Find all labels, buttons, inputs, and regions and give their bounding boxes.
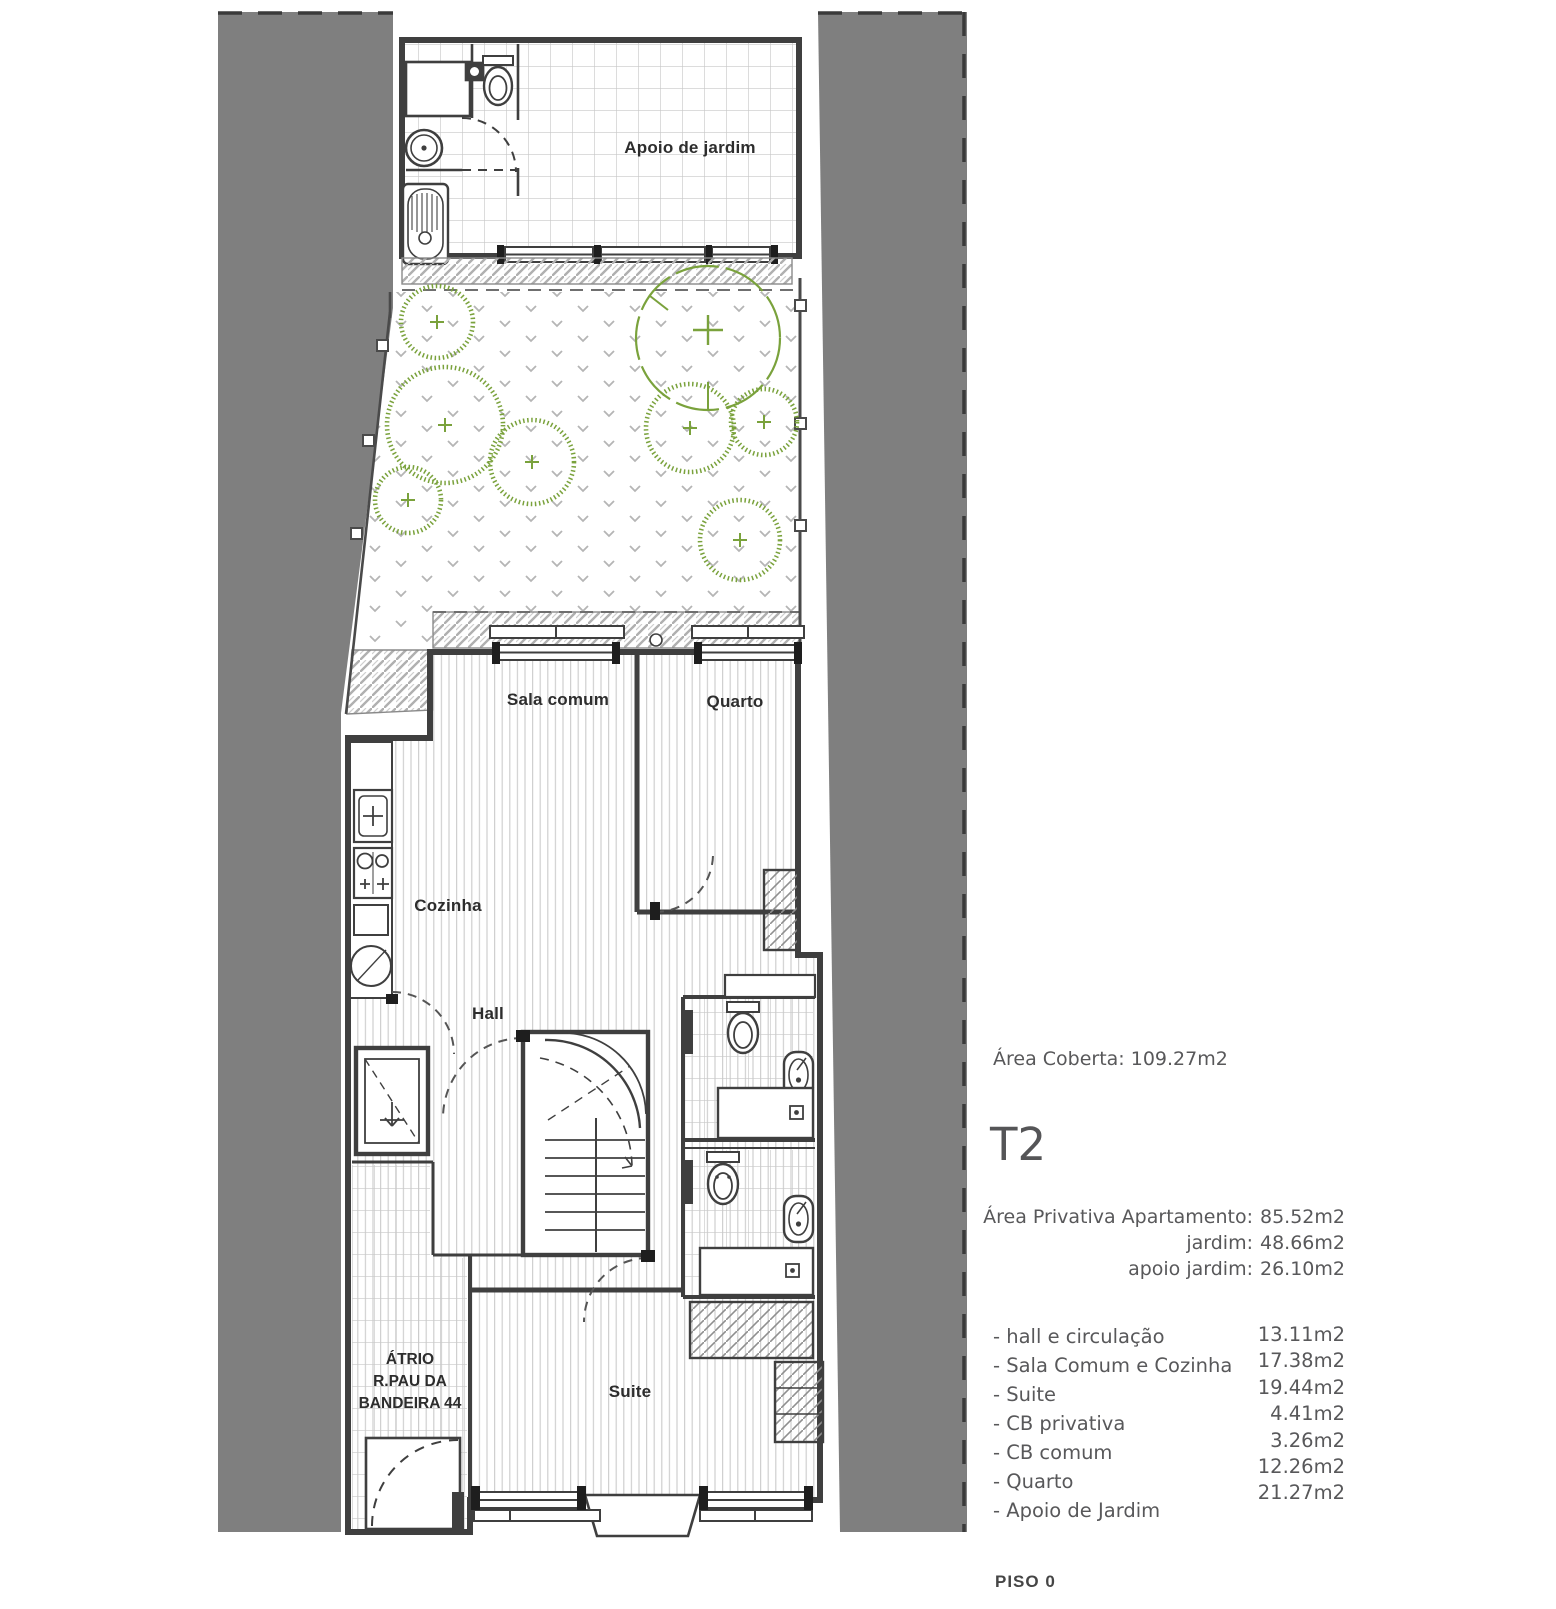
bathroom-cb-comum [685,999,813,1138]
private-area-label: Área Privativa Apartamento: [983,1206,1253,1228]
room-area-value: 19.44m2 [1258,1375,1345,1401]
unit-type-text: T2 [990,1118,1046,1171]
room-label-cozinha: Cozinha [414,896,482,916]
private-area-value: 48.66m2 [1260,1232,1345,1254]
bathtub-icon [718,1088,813,1138]
room-area-label: - Sala Comum e Cozinha [993,1351,1232,1380]
room-area-label: - CB privativa [993,1409,1232,1438]
elevator [356,1048,428,1154]
room-area-value: 12.26m2 [1258,1454,1345,1480]
toilet-icon [483,56,513,105]
room-area-value: 21.27m2 [1258,1480,1345,1506]
private-area-row: jardim:48.66m2 [960,1230,1345,1256]
private-area-label: jardim: [1186,1232,1253,1254]
room-area-label: - Quarto [993,1467,1232,1496]
drain-icon [650,634,662,646]
private-area-value: 26.10m2 [1260,1258,1345,1280]
room-area-values: 13.11m2 17.38m2 19.44m2 4.41m2 3.26m2 12… [1258,1322,1345,1525]
sink-icon [784,1196,813,1242]
room-label-suite: Suite [609,1382,652,1402]
private-area-label: apoio jardim: [1128,1258,1253,1280]
entrance [366,1438,464,1532]
atrio-line: ÁTRIO [359,1349,462,1371]
stairs [523,1032,648,1255]
room-area-value: 17.38m2 [1258,1348,1345,1374]
bathtub-icon [700,1248,813,1295]
room-area-labels: - hall e circulação - Sala Comum e Cozin… [993,1322,1232,1525]
room-areas-list: - hall e circulação - Sala Comum e Cozin… [993,1322,1345,1525]
private-area-value: 85.52m2 [1260,1206,1345,1228]
room-label-hall: Hall [472,1004,504,1024]
toilet-icon [707,1152,739,1204]
paving-left [347,650,433,714]
kitchen-fixtures [351,790,392,986]
private-area-row: apoio jardim:26.10m2 [960,1256,1345,1282]
room-area-label: - Apoio de Jardim [993,1496,1232,1525]
shelf [725,975,815,997]
room-label-quarto: Quarto [707,692,764,712]
room-label-sala: Sala comum [507,690,609,710]
room-area-label: - Suite [993,1380,1232,1409]
floor-plan-page: { "plan": { "rooms": { "apoio": "Apoio d… [0,0,1556,1609]
room-area-label: - CB comum [993,1438,1232,1467]
private-areas-block: Área Privativa Apartamento:85.52m2 jardi… [960,1204,1345,1282]
private-area-row: Área Privativa Apartamento:85.52m2 [960,1204,1345,1230]
atrio-line: R.PAU DA [359,1371,462,1393]
room-area-value: 13.11m2 [1258,1322,1345,1348]
bathroom-cb-privativa [685,1150,813,1295]
suite-closet-right [775,1362,823,1442]
floor-level-label: PISO 0 [995,1572,1056,1592]
suite-closet-top [690,1302,813,1358]
toilet-icon [727,1002,759,1053]
room-label-atrio: ÁTRIO R.PAU DA BANDEIRA 44 [359,1349,462,1415]
door-leaf [685,1160,693,1204]
atrio-line: BANDEIRA 44 [359,1393,462,1415]
room-label-apoio: Apoio de jardim [624,138,755,158]
sink-icon [406,130,442,166]
stove-icon [354,848,392,898]
room-area-value: 3.26m2 [1258,1428,1345,1454]
area-coberta-text: Área Coberta: 109.27m2 [993,1048,1228,1070]
bathtub-icon [403,184,448,264]
room-area-label: - hall e circulação [993,1322,1232,1351]
quarto-closet [764,870,798,950]
room-area-value: 4.41m2 [1258,1401,1345,1427]
